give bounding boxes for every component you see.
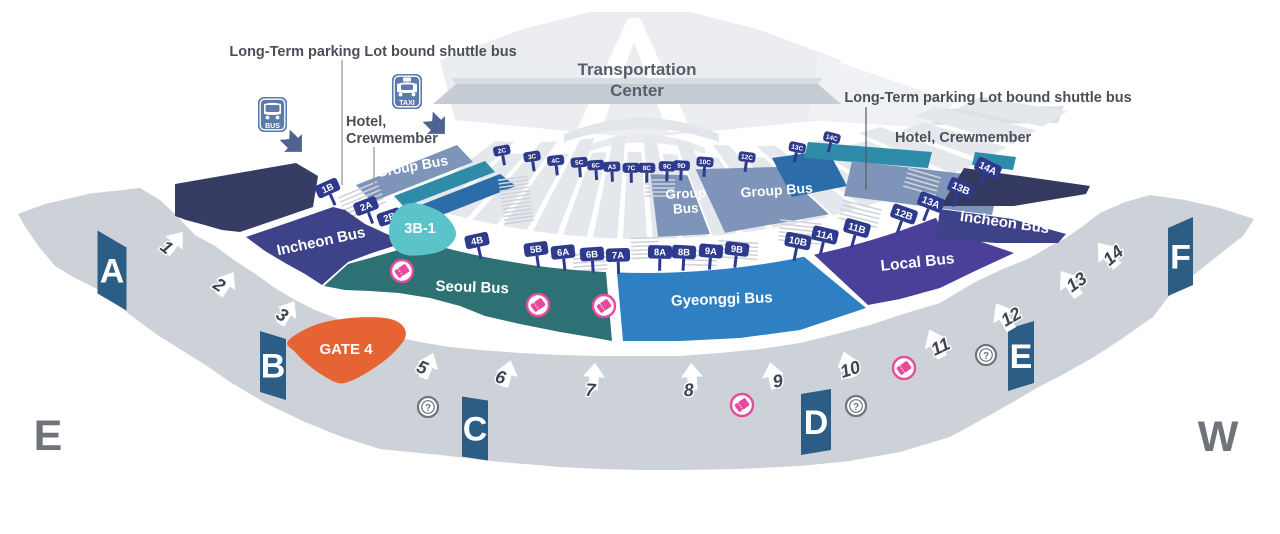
svg-text:GATE 4: GATE 4	[319, 341, 373, 358]
svg-text:5C: 5C	[575, 159, 584, 167]
svg-text:6C: 6C	[591, 162, 600, 170]
svg-text:Long-Term parking Lot bound sh: Long-Term parking Lot bound shuttle bus	[229, 44, 516, 60]
svg-text:9D: 9D	[677, 163, 686, 170]
svg-text:C: C	[463, 411, 488, 449]
svg-text:?: ?	[983, 351, 989, 362]
svg-text:F: F	[1170, 239, 1191, 277]
svg-text:Hotel,: Hotel,	[346, 114, 386, 130]
svg-text:Gyeonggi Bus: Gyeonggi Bus	[671, 289, 773, 310]
svg-text:3B-1: 3B-1	[404, 221, 435, 237]
svg-text:W: W	[1198, 413, 1239, 461]
svg-text:Transportation: Transportation	[577, 60, 696, 79]
svg-text:9C: 9C	[663, 164, 672, 171]
svg-text:10B: 10B	[788, 235, 808, 249]
svg-text:7C: 7C	[627, 165, 636, 172]
svg-text:9A: 9A	[704, 246, 717, 258]
svg-text:4C: 4C	[551, 157, 560, 165]
svg-text:7A: 7A	[612, 250, 625, 261]
svg-text:?: ?	[425, 403, 431, 414]
svg-text:Group: Group	[665, 185, 706, 202]
svg-text:8B: 8B	[678, 247, 691, 259]
svg-text:TAXI: TAXI	[399, 100, 414, 107]
svg-text:Center: Center	[610, 81, 664, 100]
svg-text:6A: 6A	[556, 247, 569, 259]
svg-text:Long-Term parking Lot bound sh: Long-Term parking Lot bound shuttle bus	[844, 90, 1131, 106]
svg-text:8C: 8C	[643, 165, 652, 172]
svg-text:3C: 3C	[528, 153, 538, 161]
svg-text:Seoul Bus: Seoul Bus	[435, 278, 509, 298]
svg-text:D: D	[804, 404, 829, 442]
svg-text:9B: 9B	[730, 244, 743, 256]
svg-text:?: ?	[853, 402, 859, 413]
svg-text:Hotel, Crewmember: Hotel, Crewmember	[895, 130, 1032, 146]
svg-text:E: E	[1010, 338, 1033, 376]
svg-text:8: 8	[683, 380, 694, 400]
svg-text:10C: 10C	[699, 159, 712, 167]
svg-text:8A: 8A	[654, 247, 667, 258]
svg-text:5B: 5B	[529, 244, 543, 257]
svg-text:Crewmember: Crewmember	[346, 131, 438, 147]
svg-text:B: B	[261, 348, 286, 386]
svg-text:BUS: BUS	[265, 123, 280, 130]
svg-text:A3: A3	[608, 164, 617, 171]
svg-text:6B: 6B	[586, 249, 599, 261]
svg-text:Bus: Bus	[673, 200, 699, 216]
svg-text:A: A	[100, 253, 125, 291]
svg-text:E: E	[34, 412, 63, 460]
